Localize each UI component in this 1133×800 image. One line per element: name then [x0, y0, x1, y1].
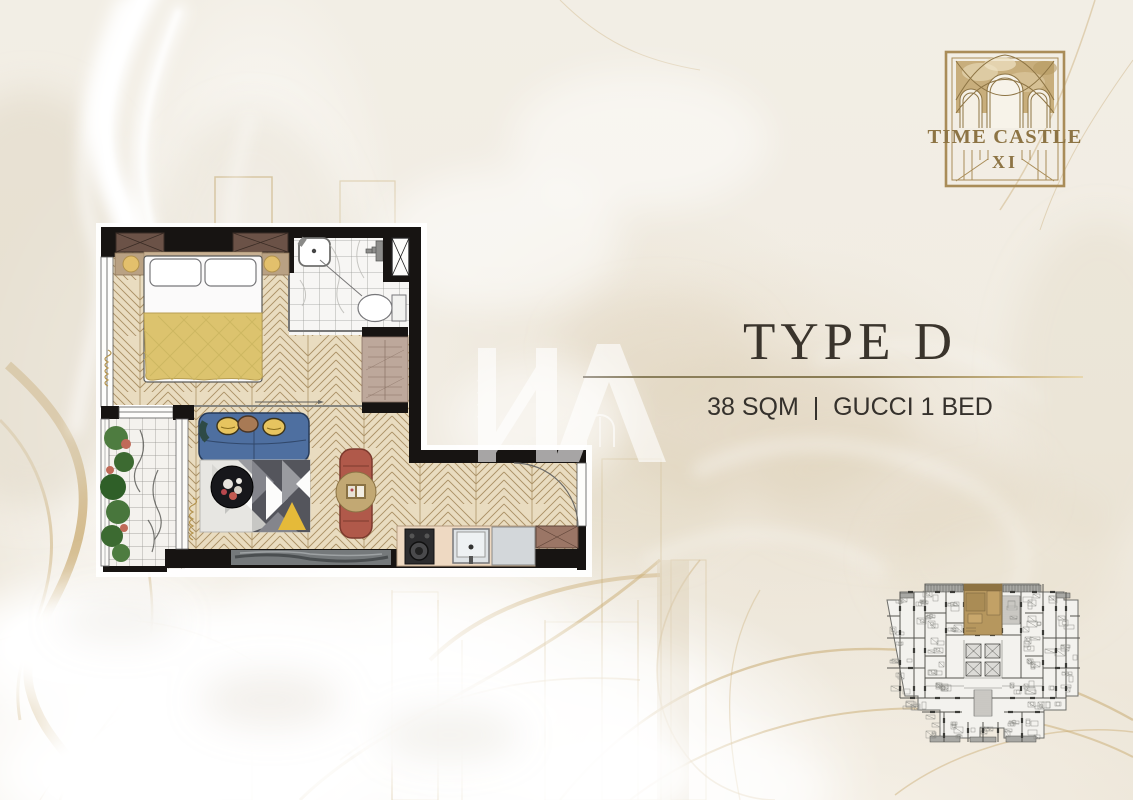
svg-text:XI: XI — [992, 152, 1018, 172]
svg-text:TIME CASTLE: TIME CASTLE — [927, 126, 1082, 148]
